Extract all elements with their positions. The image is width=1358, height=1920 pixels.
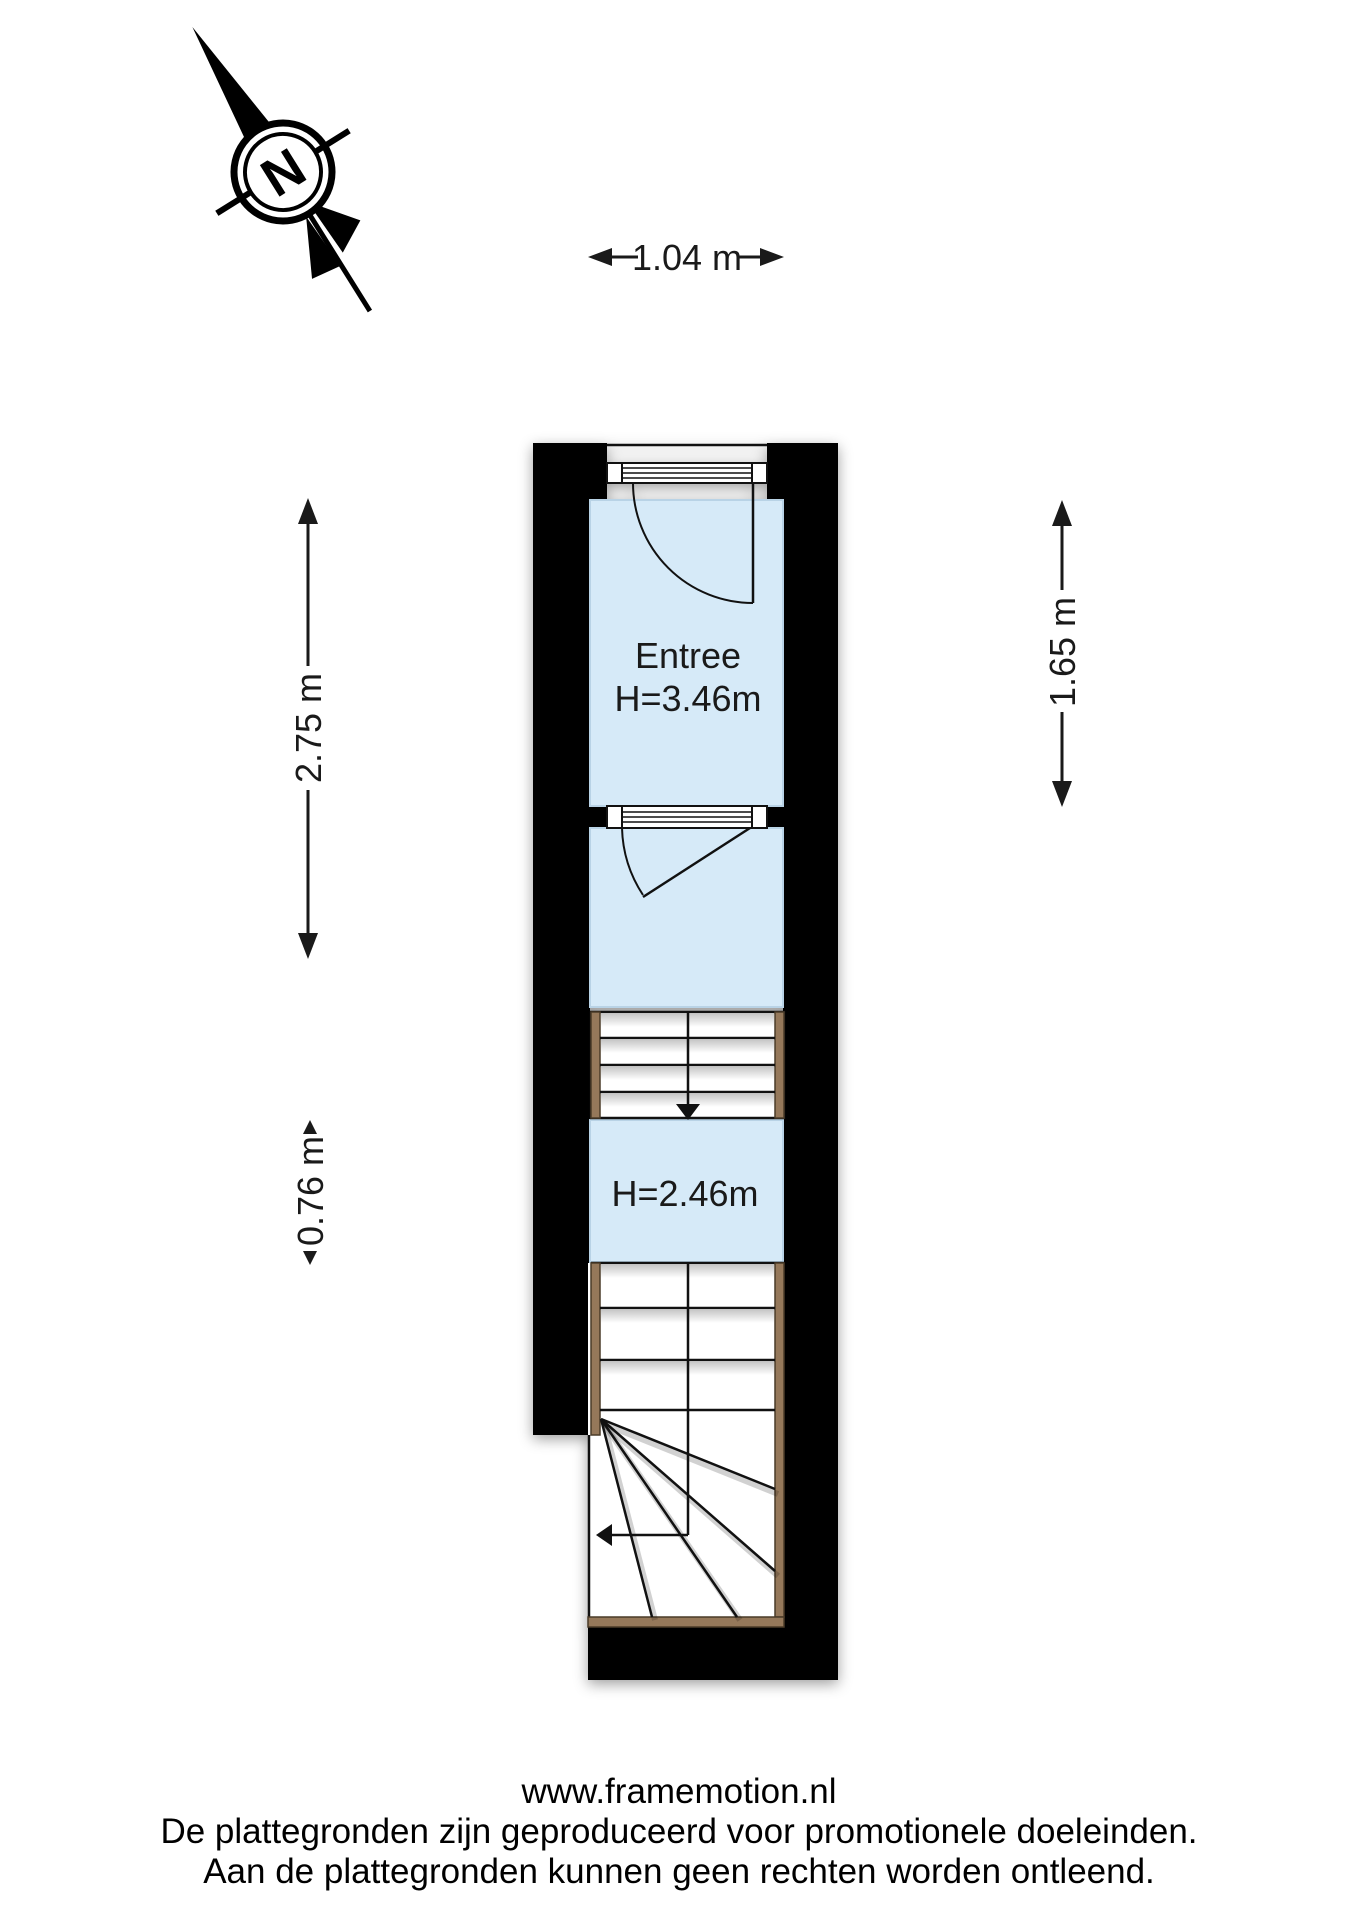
wall-left: [533, 443, 590, 1435]
footer-website: www.framemotion.nl: [0, 1772, 1358, 1812]
dim-label-left-lower: 0.76 m: [290, 1136, 331, 1246]
dim-arrowhead-up: [298, 498, 318, 524]
wall-right: [783, 443, 838, 1680]
footer-disclaimer-line1: De plattegronden zijn geproduceerd voor …: [0, 1812, 1358, 1852]
stair-stringer-right: [775, 1012, 784, 1118]
footer: www.framemotion.nl De plattegronden zijn…: [0, 1772, 1358, 1892]
stair-stringer-left: [591, 1263, 600, 1435]
footer-disclaimer-line2: Aan de plattegronden kunnen geen rechten…: [0, 1852, 1358, 1892]
wall-interior-stub-left: [590, 806, 607, 828]
dim-arrowhead-up: [1052, 500, 1072, 526]
staircase-lower: [588, 1263, 784, 1627]
room-label-entree: Entree: [635, 635, 741, 676]
dim-label-left-upper: 2.75 m: [288, 673, 329, 783]
floorplan-canvas: N 1.04 m 2.75 m 1.65 m 0.76 m: [0, 0, 1358, 1920]
compass-north-icon: N: [126, 0, 436, 352]
interior-door-threshold: [607, 806, 767, 828]
dim-label-top: 1.04 m: [632, 237, 742, 278]
stair-stringer-bottom: [588, 1617, 784, 1627]
dim-arrowhead-down: [303, 1251, 317, 1265]
stair-stringer-left: [591, 1012, 600, 1118]
floorplan-drawing: Entree H=3.46m H=2.46m: [533, 443, 838, 1680]
hall-room-floor: [590, 828, 783, 1007]
dimension-right: 1.65 m: [1042, 500, 1083, 807]
stair-stringer-right: [775, 1263, 784, 1617]
wall-bottom: [588, 1627, 838, 1680]
dim-arrowhead-left: [588, 248, 612, 266]
dimension-left-upper: 2.75 m: [288, 498, 329, 959]
floorplan-page: N 1.04 m 2.75 m 1.65 m 0.76 m: [0, 0, 1358, 1920]
staircase-upper: [591, 1012, 784, 1120]
dim-arrowhead-up: [303, 1120, 317, 1134]
room-label-landing-height: H=2.46m: [611, 1173, 758, 1214]
dim-label-right: 1.65 m: [1042, 597, 1083, 707]
dim-arrowhead-down: [298, 933, 318, 959]
dim-arrowhead-right: [760, 248, 784, 266]
dim-arrowhead-down: [1052, 781, 1072, 807]
room-label-entree-height: H=3.46m: [614, 678, 761, 719]
dimension-top-width: 1.04 m: [588, 237, 784, 278]
front-door-threshold-window: [607, 463, 767, 483]
wall-left-door-jamb: [590, 443, 607, 500]
dimension-left-lower: 0.76 m: [290, 1120, 331, 1265]
